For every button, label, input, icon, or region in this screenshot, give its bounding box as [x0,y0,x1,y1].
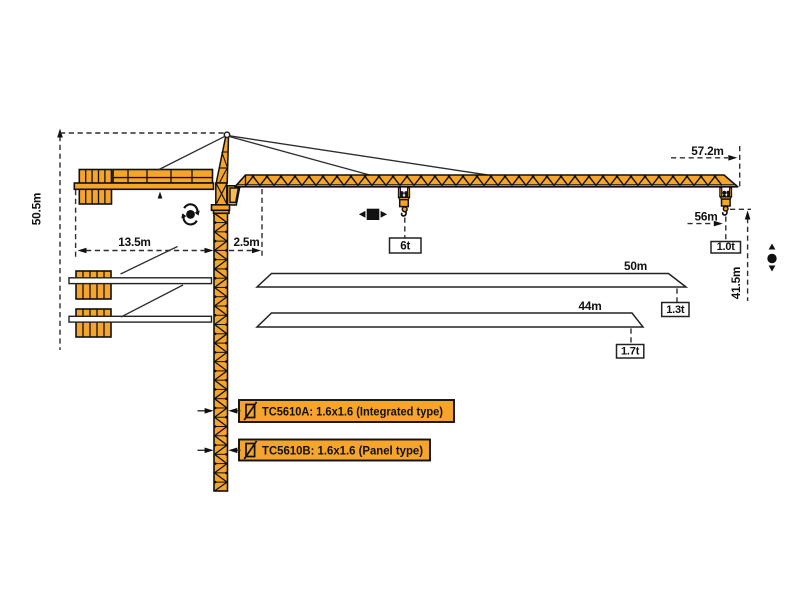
svg-text:50m: 50m [624,259,647,273]
svg-text:1.7t: 1.7t [621,346,640,358]
svg-text:13.5m: 13.5m [118,235,150,249]
svg-text:44m: 44m [578,299,601,313]
svg-text:6t: 6t [400,241,410,253]
svg-text:1.0t: 1.0t [717,241,736,253]
svg-text:TC5610B: 1.6x1.6 (Panel type: TC5610B: 1.6x1.6 (Panel type) [262,444,423,458]
svg-text:TC5610A: 1.6x1.6 (Integrated: TC5610A: 1.6x1.6 (Integrated type) [262,405,443,419]
svg-text:1.3t: 1.3t [666,304,685,316]
svg-text:2.5m: 2.5m [233,235,259,249]
svg-text:57.2m: 57.2m [691,144,723,158]
svg-text:41.5m: 41.5m [729,267,743,299]
svg-text:50.5m: 50.5m [30,193,44,225]
